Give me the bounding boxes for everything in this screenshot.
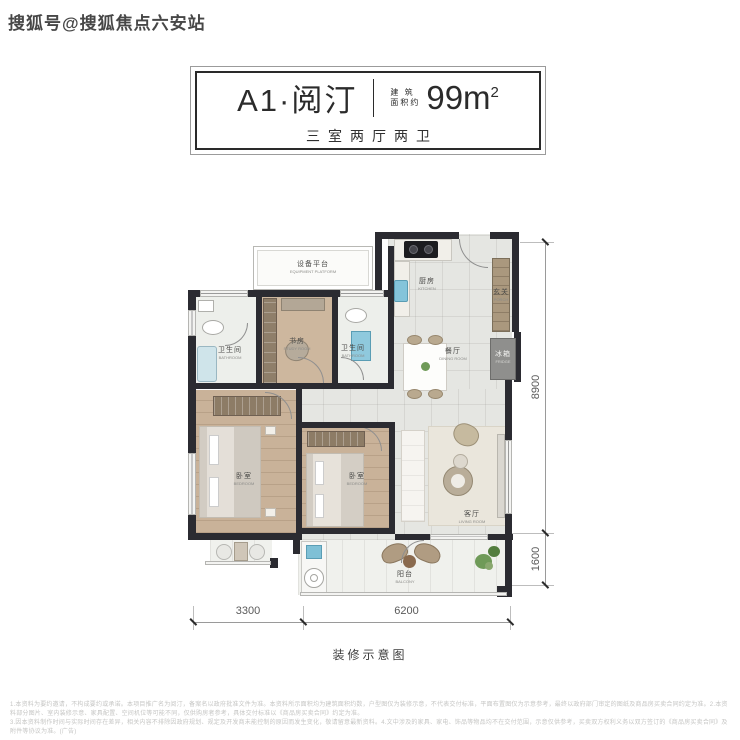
window-balcony-door: [430, 534, 488, 540]
bed: [306, 453, 364, 527]
window: [505, 440, 512, 514]
wall-segment: [388, 246, 394, 385]
area-prefix-line2: 面积约: [390, 98, 420, 108]
floor-plan: 设备平台 EQUIPMENT PLATFORM 卫生间 BATHROOM 书房 …: [185, 228, 530, 606]
room-label-fridge: 冰箱 FRIDGE: [494, 351, 513, 365]
room-label-equipment-platform: 设备平台 EQUIPMENT PLATFORM: [284, 261, 342, 275]
sofa: [401, 430, 425, 522]
stove-icon: [404, 241, 438, 258]
dining-chair: [428, 389, 443, 399]
wall-segment: [512, 232, 519, 332]
dimension-value-1600: 1600: [530, 539, 542, 579]
layout-subtitle: 三室两厅两卫: [298, 126, 438, 146]
area-superscript: 2: [491, 84, 499, 101]
plant-icon: [485, 562, 493, 570]
area-value: 99m2: [426, 79, 499, 117]
plan-caption: 装修示意图: [270, 646, 470, 663]
title-card-inner-border: A1·阅汀 建 筑 面积约 99m2 三室两厅两卫: [195, 71, 541, 150]
area-prefix-line1: 建 筑: [390, 88, 420, 98]
dimension-line-horizontal: [193, 622, 511, 623]
room-label-kitchen: 厨房 KITCHEN: [416, 278, 438, 292]
dimension-value-6200: 6200: [303, 605, 510, 617]
room-label-balcony: 阳台 BALCONY: [393, 571, 417, 585]
side-table: [453, 454, 468, 469]
footer-disclaimer: 1.本资料为要约邀请，不构成要约或承诺。本项目推广名为阅汀，备案名以政府批准文件…: [10, 701, 732, 737]
bathtub-icon: [197, 346, 217, 382]
wall-segment: [375, 232, 459, 239]
washbasin-icon: [198, 300, 214, 312]
area-prefix: 建 筑 面积约: [390, 88, 420, 108]
kitchen-sink-icon: [394, 280, 408, 302]
room-label-bedroom-mid: 卧室 BEDROOM: [344, 473, 370, 487]
footer-line-1: 1.本资料为要约邀请，不构成要约或承诺。本项目推广名为阅汀，备案名以政府批准文件…: [10, 701, 732, 719]
room-label-living: 客厅 LIVING ROOM: [455, 511, 488, 525]
dining-plant-icon: [421, 362, 430, 371]
nightstand: [265, 508, 276, 517]
room-label-bedroom-left: 卧室 BEDROOM: [231, 473, 257, 487]
dimension-extension: [520, 242, 554, 243]
room-label-dining: 餐厅 DINING ROOM: [436, 348, 470, 362]
wall-segment: [302, 528, 395, 534]
vanity-cabinet: [234, 542, 248, 561]
dimension-value-3300: 3300: [193, 605, 303, 617]
nightstand: [265, 426, 276, 435]
bed: [199, 426, 261, 518]
wall-segment: [188, 533, 302, 540]
title-row: A1·阅汀 建 筑 面积约 99m2: [237, 75, 499, 120]
wall-segment: [296, 389, 302, 533]
toilet-icon: [202, 320, 224, 335]
tv-cabinet: [497, 434, 505, 518]
title-divider: [373, 79, 374, 117]
window: [340, 290, 384, 297]
footer-line-2: 3.因本资料制作时间与实际时间存在差异，相关内容不排除因政府规划、规定及开发商未…: [10, 719, 732, 737]
wall-segment: [270, 558, 278, 568]
wall-segment: [188, 383, 394, 389]
window: [205, 561, 271, 565]
toilet-icon: [345, 308, 367, 323]
room-label-study: 书房 STUDY ROOM: [280, 338, 314, 352]
watermark-text: 搜狐号@搜狐焦点六安站: [8, 9, 206, 34]
room-label-bathroom-left: 卫生间 BATHROOM: [216, 347, 245, 361]
wall-segment: [302, 422, 395, 428]
room-label-porch: 玄关 PORCH: [492, 289, 510, 303]
wall-segment: [293, 534, 300, 554]
dining-chair: [407, 389, 422, 399]
window: [188, 453, 196, 515]
coffee-table: [443, 466, 473, 496]
wall-segment: [375, 232, 382, 297]
wall-segment: [332, 290, 338, 385]
study-desk: [281, 298, 325, 311]
plant-icon: [488, 546, 500, 557]
area-number: 99m: [426, 79, 490, 116]
laundry-sink-icon: [306, 545, 322, 559]
bookshelf: [263, 298, 277, 384]
dimension-value-8900: 8900: [530, 367, 542, 407]
wall-segment: [256, 290, 262, 385]
dimension-extension: [510, 606, 511, 630]
dining-chair: [428, 335, 443, 345]
window: [200, 290, 248, 297]
vanity-stool: [216, 544, 232, 560]
dining-chair: [407, 335, 422, 345]
area-block: 建 筑 面积约 99m2: [390, 79, 499, 117]
vanity-stool: [249, 544, 265, 560]
room-label-bathroom-mid: 卫生间 BATHROOM: [339, 345, 368, 359]
unit-name: A1·阅汀: [237, 75, 357, 120]
window-balcony-rail: [300, 592, 507, 596]
washer-icon: [304, 568, 324, 588]
wall-segment: [389, 422, 395, 534]
window: [188, 310, 196, 336]
title-card: A1·阅汀 建 筑 面积约 99m2 三室两厅两卫: [190, 66, 546, 155]
wall-segment: [490, 232, 512, 239]
